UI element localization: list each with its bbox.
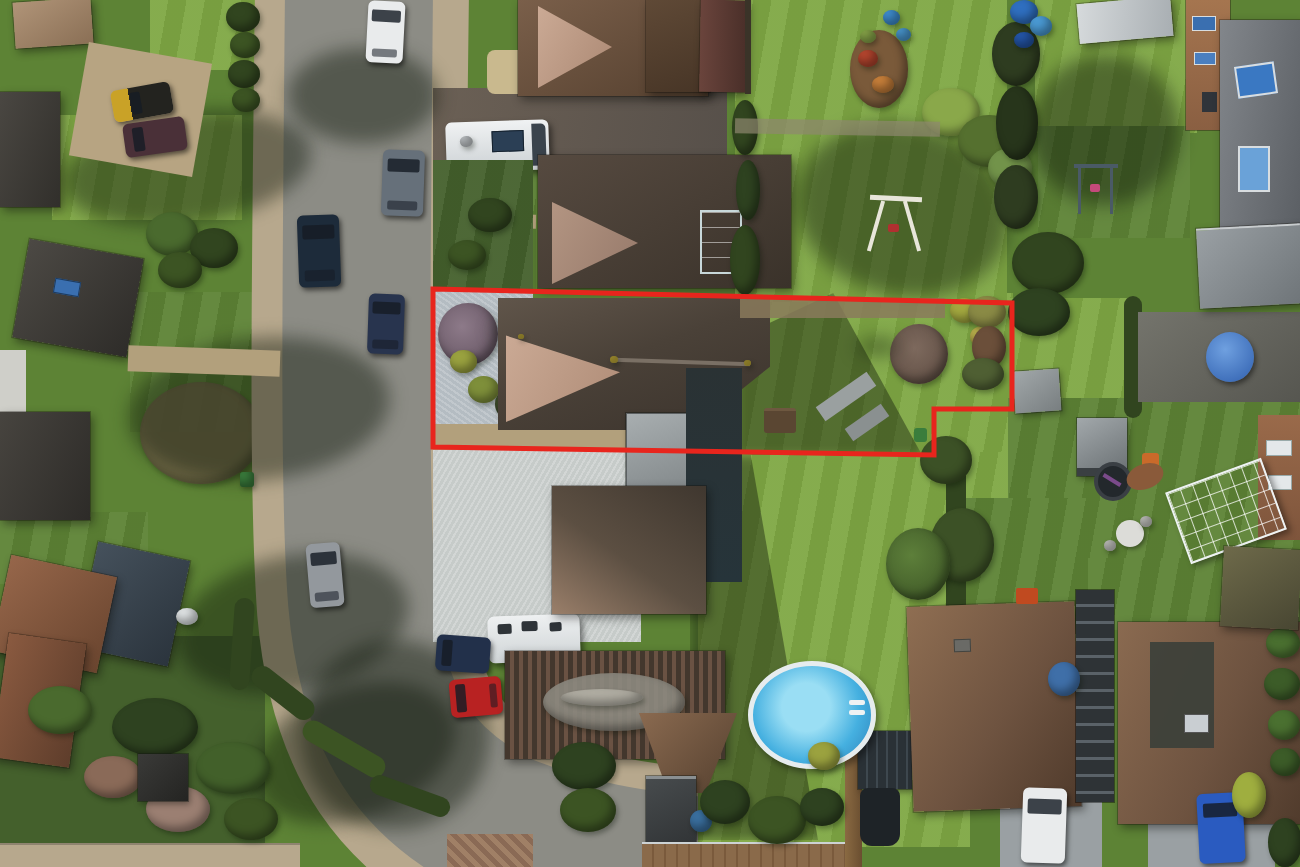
aerial-photo [0,0,1300,867]
property-boundary [0,0,1300,867]
boundary-polygon [433,289,1012,455]
